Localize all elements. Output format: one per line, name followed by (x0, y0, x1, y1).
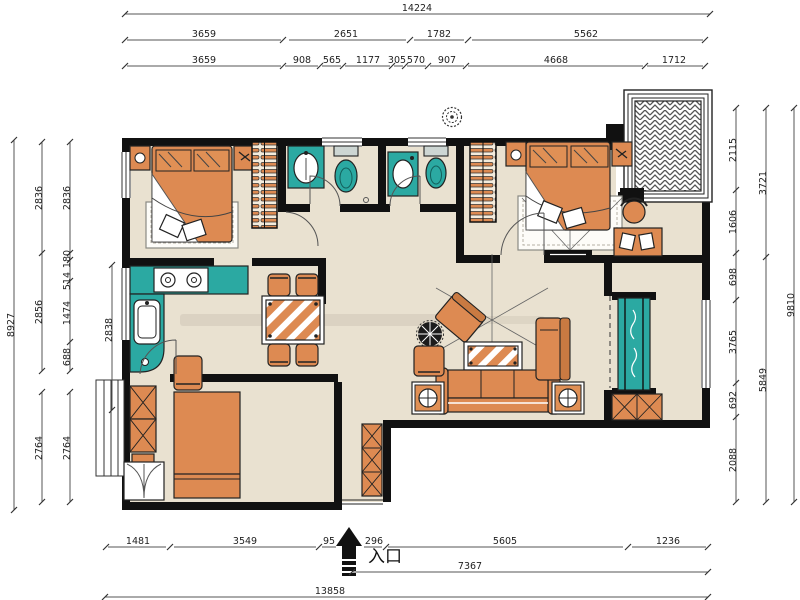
dim-label: 1782 (427, 29, 451, 40)
dim-top-overall: 14224 (402, 3, 432, 14)
dim-label: 1474 (62, 301, 73, 325)
wall-bottom-left (122, 502, 342, 510)
wall-kitchen-north-1 (122, 258, 214, 266)
wall-bay-stub-top (604, 263, 612, 296)
dim-label: 2836 (34, 186, 45, 210)
wall-bottom-main (383, 420, 710, 428)
nightstand-icon (612, 142, 632, 166)
stool-icon (414, 346, 444, 376)
side-table-lamp-icon (412, 382, 444, 414)
floor-plan-drawing: 入口 14224 365 (0, 0, 800, 600)
side-table-lamp-icon (552, 382, 584, 414)
dim-label: 5562 (574, 29, 598, 40)
wardrobe-x-icon (130, 386, 156, 470)
dim-label: 95 (323, 536, 335, 547)
wardrobe-icon (252, 142, 277, 228)
wall-bed2-south-1 (456, 255, 500, 263)
bed-double-icon (152, 146, 232, 242)
dim-label: 2838 (104, 318, 115, 342)
bed-double-icon (526, 142, 610, 230)
wall-bed2-left (456, 146, 464, 263)
dining-chair-icon (296, 344, 318, 366)
entrance-marker: 入口 (336, 527, 402, 576)
stove-icon (154, 268, 208, 292)
wall-bath-south-2 (340, 204, 390, 212)
wall-bay-stub-bottom (604, 390, 612, 420)
entrance-arrow-icon (336, 527, 362, 576)
dim-label: 305 (388, 55, 406, 66)
dim-label: 565 (323, 55, 341, 66)
dim-label: 180 (62, 250, 73, 268)
dim-label: 2764 (34, 436, 45, 460)
dim-label: 5849 (758, 368, 769, 392)
nightstand-icon (130, 146, 150, 170)
wall-bath-south-3 (420, 204, 456, 212)
dim-label: 3765 (728, 330, 739, 354)
dim-label: 688 (62, 348, 73, 366)
dim-label: 3549 (233, 536, 257, 547)
dim-label: 698 (728, 268, 739, 286)
dining-chair-icon (268, 274, 290, 296)
dim-label: 3721 (758, 171, 769, 195)
dim-label: 1481 (126, 536, 150, 547)
toilet-icon (334, 146, 358, 192)
dim-label: 2836 (62, 186, 73, 210)
balcony (620, 90, 712, 202)
dim-label: 908 (293, 55, 311, 66)
cabinet-x-icon (612, 394, 662, 420)
wall-bed1-right (278, 146, 286, 212)
dining-table-icon (262, 296, 324, 344)
sink-vanity-icon (288, 146, 324, 188)
desk-icon (614, 228, 662, 256)
floor-plan-page: 入口 14224 365 (0, 0, 800, 600)
single-bed-icon (174, 392, 240, 498)
tv-icon (544, 250, 592, 259)
window-room3-bay (96, 380, 124, 476)
dim-left-overall: 8927 (6, 313, 17, 337)
wall-nook-right (383, 420, 391, 502)
stool-icon (174, 356, 202, 390)
dim-label: 2115 (728, 138, 739, 162)
dim-label: 3659 (192, 55, 216, 66)
window-bay-right (701, 300, 711, 388)
nightstand-icon (506, 142, 526, 166)
plant-icon (443, 108, 462, 127)
cabinet-double-door-icon (124, 462, 164, 500)
dim-label: 5605 (493, 536, 517, 547)
lounge-chair-icon (536, 318, 570, 380)
wall-bath-south-1 (286, 204, 310, 212)
dim-bottom-overall: 13858 (315, 586, 345, 597)
balcony-tile-hatch (635, 101, 701, 191)
shoe-cabinet-icon (362, 424, 382, 496)
dining-chair-icon (268, 344, 290, 366)
kitchen-sink-icon (134, 300, 160, 344)
dim-label: 570 (407, 55, 425, 66)
dim-label: 1236 (656, 536, 680, 547)
dim-label: 514 (62, 272, 73, 290)
dim-label: 2764 (62, 436, 73, 460)
wall-bath-divider (378, 146, 386, 212)
dim-label: 7367 (458, 561, 482, 572)
dim-label: 296 (365, 536, 383, 547)
dim-label: 1177 (356, 55, 380, 66)
bay-window-bench-icon (612, 292, 656, 396)
dim-label: 2856 (34, 300, 45, 324)
dim-label: 2088 (728, 448, 739, 472)
dim-label: 692 (728, 391, 739, 409)
coffee-table-icon (464, 342, 522, 370)
dim-label: 1712 (662, 55, 686, 66)
toilet-icon (424, 146, 448, 188)
dim-label: 3659 (192, 29, 216, 40)
wall-kitchen-north-2 (252, 258, 326, 266)
entrance-label: 入口 (368, 547, 402, 567)
dim-label: 2651 (334, 29, 358, 40)
dining-chair-icon (296, 274, 318, 296)
dim-label: 907 (438, 55, 456, 66)
sink-vanity-icon (388, 152, 418, 196)
dim-label: 4668 (544, 55, 568, 66)
room3 (124, 386, 240, 500)
wall-room3-right (334, 382, 342, 510)
dim-right-overall: 9810 (786, 293, 797, 317)
dim-label: 1606 (728, 210, 739, 234)
wardrobe-icon (470, 142, 496, 222)
